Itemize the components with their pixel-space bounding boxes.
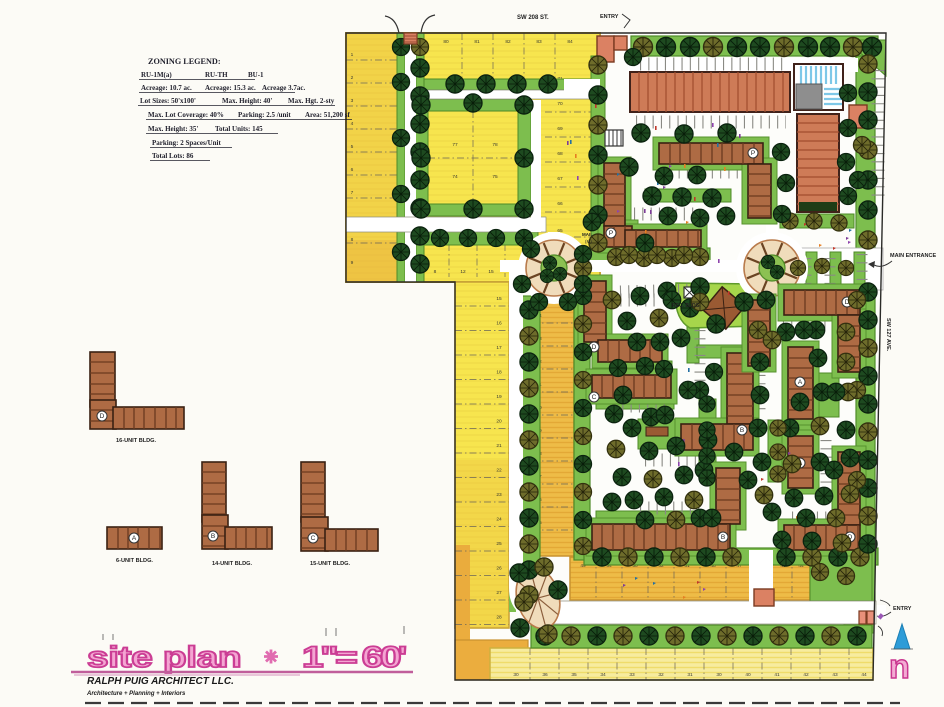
svg-text:16-UNIT BLDG.: 16-UNIT BLDG. [116,438,157,444]
svg-text:25: 25 [496,541,502,547]
svg-text:15-UNIT BLDG.: 15-UNIT BLDG. [310,561,351,567]
svg-text:RU-1M(a): RU-1M(a) [141,71,172,79]
svg-text:4: 4 [351,121,354,127]
svg-text:42: 42 [803,672,809,678]
svg-text:B: B [211,533,215,540]
svg-text:75: 75 [492,174,498,180]
svg-text:15: 15 [488,269,494,275]
svg-text:Architecture + Planning + Inte: Architecture + Planning + Interiors [86,691,186,697]
svg-text:14-UNIT BLDG.: 14-UNIT BLDG. [212,561,253,567]
svg-text:15: 15 [496,296,502,302]
svg-text:Max. Height: 40': Max. Height: 40' [222,97,272,105]
svg-text:ENTRY: ENTRY [600,14,619,20]
svg-text:30: 30 [513,672,519,678]
svg-text:1: 1 [351,52,354,58]
svg-text:82: 82 [505,39,511,45]
svg-text:MAIN ENTRANCE: MAIN ENTRANCE [890,253,936,259]
svg-text:16: 16 [496,321,502,327]
svg-text:74: 74 [452,174,458,180]
svg-text:P: P [609,230,613,237]
svg-text:9: 9 [351,260,354,266]
svg-text:35: 35 [571,672,577,678]
svg-text:81: 81 [474,39,480,45]
svg-text:ZONING LEGEND:: ZONING LEGEND: [148,57,221,66]
svg-text:34: 34 [600,672,606,678]
svg-text:6-UNIT BLDG.: 6-UNIT BLDG. [116,558,153,564]
svg-text:RALPH PUIG ARCHITECT LLC.: RALPH PUIG ARCHITECT LLC. [87,676,234,687]
svg-text:REC. BLDG.: REC. BLDG. [672,303,702,309]
svg-text:33: 33 [629,672,635,678]
svg-text:69: 69 [557,126,563,132]
svg-text:3: 3 [351,98,354,104]
svg-text:21: 21 [496,443,502,449]
svg-text:BU-1: BU-1 [248,71,264,79]
svg-text:ENTRY: ENTRY [893,606,912,612]
svg-text:MAIL: MAIL [582,232,593,237]
svg-text:83: 83 [536,39,542,45]
svg-text:20: 20 [496,419,502,425]
svg-text:(M): (M) [585,239,592,244]
svg-text:Max. Lot Coverage: 40%: Max. Lot Coverage: 40% [148,111,224,119]
svg-text:Acreage 3.7ac.: Acreage 3.7ac. [262,84,305,92]
svg-text:Acreage: 10.7 ac.: Acreage: 10.7 ac. [141,84,192,92]
svg-text:P: P [751,150,755,157]
svg-text:Total Units: 145: Total Units: 145 [215,125,263,133]
svg-text:D: D [592,344,597,351]
svg-text:Total Lots: 86: Total Lots: 86 [152,152,194,160]
svg-text:Parking: 2.5 /unit: Parking: 2.5 /unit [238,111,291,119]
svg-text:66: 66 [557,201,563,207]
svg-text:2: 2 [351,75,354,81]
svg-text:24: 24 [496,517,502,523]
svg-text:Parking: 2 Spaces/Unit: Parking: 2 Spaces/Unit [152,139,222,147]
svg-text:C: C [592,394,597,401]
svg-text:32: 32 [658,672,664,678]
svg-text:22: 22 [496,468,502,474]
svg-text:27: 27 [496,590,502,596]
svg-text:Max. Hgt. 2-sty: Max. Hgt. 2-sty [288,97,335,105]
svg-text:8: 8 [434,269,437,275]
svg-text:44: 44 [861,672,867,678]
svg-text:RU-TH: RU-TH [205,71,228,79]
svg-text:Lot Sizes: 50'x100': Lot Sizes: 50'x100' [140,97,196,105]
svg-text:site plan: site plan [87,641,243,674]
svg-text:26: 26 [496,566,502,572]
svg-text:77: 77 [452,142,458,148]
svg-text:7: 7 [351,190,354,196]
svg-text:17: 17 [496,345,502,351]
svg-text:28: 28 [496,615,502,621]
svg-text:36: 36 [542,672,548,678]
svg-text:78: 78 [492,142,498,148]
svg-text:18: 18 [496,370,502,376]
svg-text:B: B [740,427,744,434]
svg-text:31: 31 [687,672,693,678]
svg-text:68: 68 [557,151,563,157]
svg-text:43: 43 [832,672,838,678]
svg-text:41: 41 [774,672,780,678]
svg-text:8: 8 [351,237,354,243]
svg-text:70: 70 [557,101,563,107]
svg-text:84: 84 [567,39,573,45]
svg-text:A: A [132,535,137,542]
svg-text:Acreage: 15.3 ac.: Acreage: 15.3 ac. [205,84,256,92]
svg-text:30: 30 [716,672,722,678]
svg-text:n: n [889,648,910,686]
svg-text:1"= 60': 1"= 60' [302,641,407,674]
svg-text:6: 6 [351,167,354,173]
svg-text:SW 208 ST.: SW 208 ST. [517,15,549,21]
svg-text:40: 40 [745,672,751,678]
svg-text:SW 127 AVE.: SW 127 AVE. [885,318,891,352]
svg-text:67: 67 [557,176,563,182]
svg-text:A: A [798,379,803,386]
svg-text:B: B [721,534,725,541]
svg-text:Area: 51,200 sf: Area: 51,200 sf [305,111,350,119]
svg-text:C: C [311,535,316,542]
svg-text:23: 23 [496,492,502,498]
svg-text:5: 5 [351,144,354,150]
svg-text:12: 12 [460,269,466,275]
svg-text:19: 19 [496,394,502,400]
svg-text:80: 80 [443,39,449,45]
svg-text:D: D [100,413,105,420]
svg-text:Max. Height: 35': Max. Height: 35' [148,125,198,133]
